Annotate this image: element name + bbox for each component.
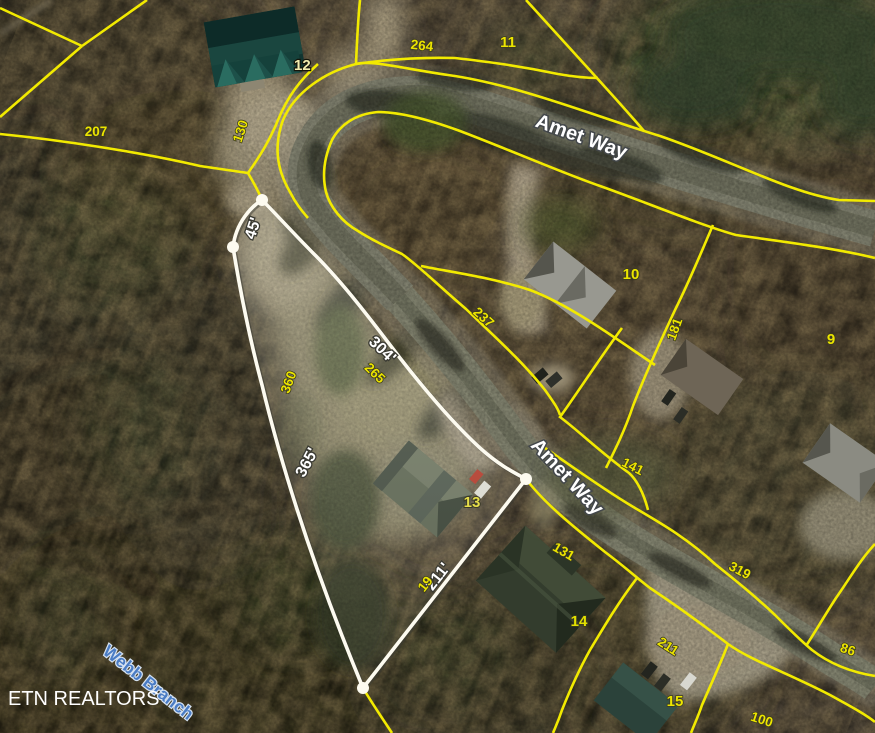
svg-text:13: 13	[464, 494, 481, 511]
svg-text:207: 207	[85, 124, 108, 139]
svg-text:10: 10	[623, 266, 640, 283]
svg-text:264: 264	[410, 37, 434, 54]
svg-text:15: 15	[667, 693, 684, 710]
svg-text:11: 11	[500, 34, 516, 51]
svg-text:12: 12	[294, 57, 311, 74]
svg-text:ETN REALTORS: ETN REALTORS	[8, 688, 160, 710]
svg-text:9: 9	[827, 331, 835, 348]
svg-text:14: 14	[571, 613, 588, 630]
